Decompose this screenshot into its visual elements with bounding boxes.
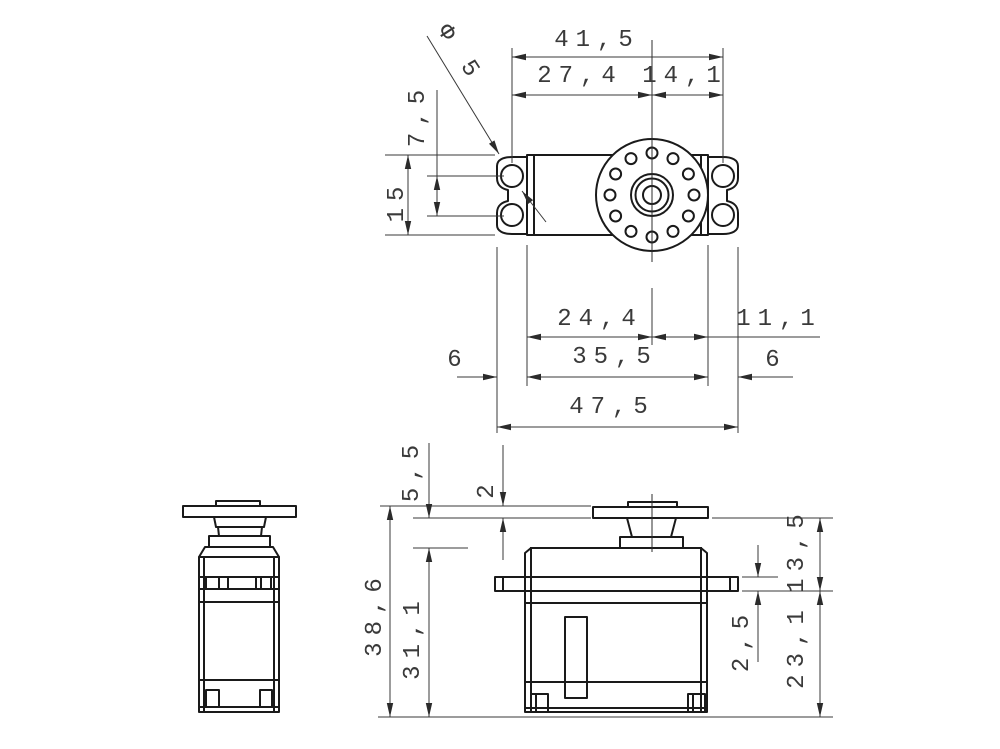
dim-label-phi-5: Φ 5 xyxy=(430,20,488,89)
top-view xyxy=(497,139,738,251)
foot xyxy=(206,690,219,707)
dim-label-2-5: 2,5 xyxy=(729,608,756,672)
dim-label-47-5: 47,5 xyxy=(569,394,655,421)
dim-label-24-4: 24,4 xyxy=(557,306,643,333)
mount-hole-top-right xyxy=(712,165,734,187)
mount-hole-bottom-left xyxy=(501,204,523,226)
dim-label-5-5: 5,5 xyxy=(399,438,426,502)
dim-label-15: 15 xyxy=(384,180,411,223)
spline-upper xyxy=(214,517,266,527)
dim-label-11-1: 11,1 xyxy=(736,306,822,333)
case-body xyxy=(525,548,707,712)
mount-tab-right xyxy=(707,577,738,591)
servo-horn xyxy=(183,506,296,517)
foot xyxy=(688,694,705,712)
dim-label-27-4: 27,4 xyxy=(537,63,623,90)
dim-label-41-5: 41,5 xyxy=(554,27,640,54)
technical-drawing-canvas: 41,5 27,4 14,1 Φ 5 7,5 15 24,4 11,1 6 35… xyxy=(0,0,1000,749)
spline-lower xyxy=(218,527,262,536)
dim-label-38-6: 38,6 xyxy=(362,571,389,657)
dim-label-2: 2 xyxy=(474,477,501,498)
dim-label-31-1: 31,1 xyxy=(400,594,427,680)
dim-label-6-right: 6 xyxy=(765,347,786,374)
foot xyxy=(531,694,548,712)
mount-tab-right xyxy=(708,157,738,234)
front-view xyxy=(495,502,738,712)
servo-horn xyxy=(593,507,708,518)
mount-tab-left xyxy=(495,577,525,591)
drawing-page: 41,5 27,4 14,1 Φ 5 7,5 15 24,4 11,1 6 35… xyxy=(0,0,1000,749)
case-body xyxy=(199,557,279,712)
mount-hole-top-left xyxy=(501,165,523,187)
flange-slot xyxy=(228,577,256,589)
case-slot xyxy=(565,617,587,698)
dim-label-14-1: 14,1 xyxy=(642,63,728,90)
mount-hole-bottom-right xyxy=(712,204,734,226)
dim-label-7-5: 7,5 xyxy=(405,83,432,147)
dim-label-35-5: 35,5 xyxy=(572,344,658,371)
dim-label-13-5: 13,5 xyxy=(784,507,811,593)
mount-tab-left xyxy=(497,157,527,234)
shaft-collar xyxy=(209,536,270,547)
side-view xyxy=(183,501,296,712)
top-view-dimensions: 41,5 27,4 14,1 Φ 5 7,5 15 24,4 11,1 6 35… xyxy=(384,20,822,433)
dim-label-23-1: 23,1 xyxy=(784,603,811,689)
dim-label-6-left: 6 xyxy=(447,347,468,374)
foot xyxy=(260,690,272,707)
flange-slot xyxy=(261,577,271,589)
flange-slot xyxy=(206,577,219,589)
case-top-cap xyxy=(199,547,279,557)
